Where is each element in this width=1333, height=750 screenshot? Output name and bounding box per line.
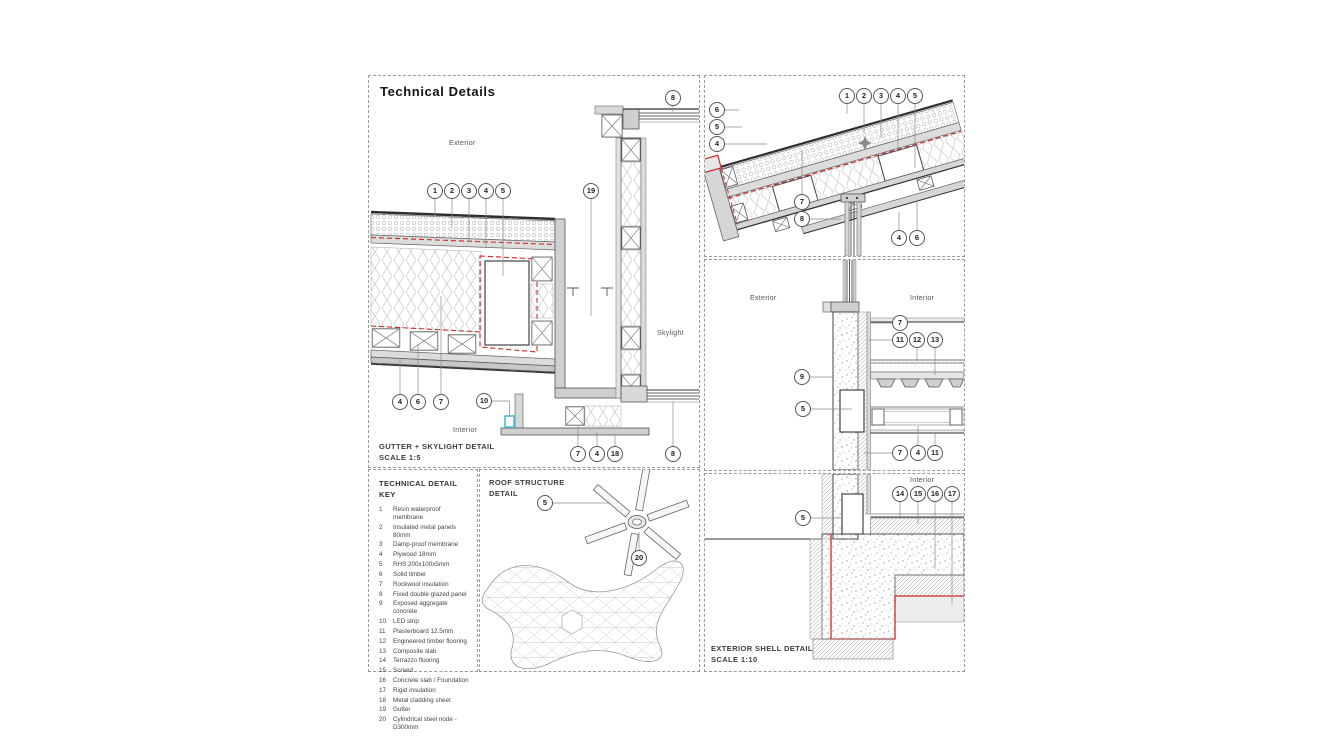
key-item: 2Insulated metal panels 80mm xyxy=(379,524,471,540)
interior-label: Interior xyxy=(453,427,477,434)
callout-11: 11 xyxy=(892,332,908,348)
key-item-number: 6 xyxy=(379,571,393,579)
key-item-number: 19 xyxy=(379,706,393,714)
callout-12: 12 xyxy=(909,332,925,348)
key-item-text: Metal cladding sheet xyxy=(393,697,471,705)
shell-caption-title: EXTERIOR SHELL DETAIL xyxy=(711,644,813,655)
key-item-text: RHS 200x100x5mm xyxy=(393,561,471,569)
callout-7: 7 xyxy=(892,445,908,461)
key-item: 15Screed xyxy=(379,667,471,675)
key-item-number: 2 xyxy=(379,524,393,540)
key-item-number: 10 xyxy=(379,618,393,626)
key-item: 20Cylindrical steel node - D300mm xyxy=(379,716,471,732)
wall-section-drawing xyxy=(705,260,964,470)
key-item: 11Plasterboard 12.5mm xyxy=(379,628,471,636)
key-item: 7Rockwool insulation xyxy=(379,581,471,589)
key-item-text: LED strip xyxy=(393,618,471,626)
key-item: 3Damp-proof membrane xyxy=(379,541,471,549)
callout-5: 5 xyxy=(709,119,725,135)
key-item-number: 11 xyxy=(379,628,393,636)
key-item-number: 5 xyxy=(379,561,393,569)
drawing-sheet: { "sheet": { "title": "Technical Details… xyxy=(0,0,1333,750)
callout-5: 5 xyxy=(795,510,811,526)
callout-5: 5 xyxy=(495,183,511,199)
roof-edge-panel: 123456547846 xyxy=(704,75,965,257)
callout-14: 14 xyxy=(892,486,908,502)
key-item-number: 17 xyxy=(379,687,393,695)
callout-4: 4 xyxy=(910,445,926,461)
roof-structure-panel: ROOF STRUCTURE DETAIL 520 xyxy=(479,469,700,672)
callout-4: 4 xyxy=(891,230,907,246)
key-title-line2: KEY xyxy=(379,490,457,501)
callout-6: 6 xyxy=(709,102,725,118)
callout-2: 2 xyxy=(444,183,460,199)
key-item-number: 20 xyxy=(379,716,393,732)
callout-15: 15 xyxy=(910,486,926,502)
callout-7: 7 xyxy=(794,194,810,210)
interior-label: Interior xyxy=(910,477,934,484)
wall-section-panel: Exterior Interior 7111213957411 xyxy=(704,259,965,471)
caption-title: GUTTER + SKYLIGHT DETAIL xyxy=(379,442,495,453)
key-item-text: Plasterboard 12.5mm xyxy=(393,628,471,636)
shell-drawing xyxy=(705,474,964,671)
key-item: 16Concrete slab / Foundation xyxy=(379,677,471,685)
key-item: 17Rigid insulation xyxy=(379,687,471,695)
key-item-text: Rigid insulation xyxy=(393,687,471,695)
callout-1: 1 xyxy=(427,183,443,199)
roof-structure-title1: ROOF STRUCTURE xyxy=(489,478,565,489)
key-item-text: Engineered timber flooring xyxy=(393,638,471,646)
key-item: 12Engineered timber flooring xyxy=(379,638,471,646)
key-title-line1: TECHNICAL DETAIL xyxy=(379,479,457,490)
key-item: 18Metal cladding sheet xyxy=(379,697,471,705)
callout-13: 13 xyxy=(927,332,943,348)
key-item-number: 14 xyxy=(379,657,393,665)
key-item-number: 4 xyxy=(379,551,393,559)
callout-4: 4 xyxy=(392,394,408,410)
gutter-skylight-panel: Technical Details Exterior Interior Skyl… xyxy=(368,75,700,468)
key-title: TECHNICAL DETAIL KEY xyxy=(379,479,457,501)
callout-5: 5 xyxy=(907,88,923,104)
gutter-skylight-caption: GUTTER + SKYLIGHT DETAIL SCALE 1:5 xyxy=(379,442,495,463)
callout-4: 4 xyxy=(589,446,605,462)
shell-caption-scale: SCALE 1:10 xyxy=(711,655,813,666)
roof-structure-caption: ROOF STRUCTURE DETAIL xyxy=(489,478,565,499)
callout-20: 20 xyxy=(631,550,647,566)
callout-3: 3 xyxy=(461,183,477,199)
callout-5: 5 xyxy=(795,401,811,417)
key-item-text: Composite slab xyxy=(393,648,471,656)
key-item-text: Insulated metal panels 80mm xyxy=(393,524,471,540)
callout-9: 9 xyxy=(794,369,810,385)
key-list: 1Resin waterproof membrane2Insulated met… xyxy=(379,506,471,734)
callout-7: 7 xyxy=(570,446,586,462)
exterior-label: Exterior xyxy=(449,140,476,147)
callout-6: 6 xyxy=(410,394,426,410)
key-item-text: Damp-proof membrane xyxy=(393,541,471,549)
key-item: 13Composite slab xyxy=(379,648,471,656)
callout-5: 5 xyxy=(537,495,553,511)
key-item-text: Fixed double glazed panel xyxy=(393,591,471,599)
caption-scale: SCALE 1:5 xyxy=(379,453,495,464)
key-item-text: Resin waterproof membrane xyxy=(393,506,471,522)
exterior-label: Exterior xyxy=(750,295,777,302)
key-panel: TECHNICAL DETAIL KEY 1Resin waterproof m… xyxy=(368,469,478,672)
callout-16: 16 xyxy=(927,486,943,502)
callout-18: 18 xyxy=(607,446,623,462)
callout-3: 3 xyxy=(873,88,889,104)
key-item-text: Gutter xyxy=(393,706,471,714)
key-item-number: 13 xyxy=(379,648,393,656)
callout-17: 17 xyxy=(944,486,960,502)
key-item: 10LED strip xyxy=(379,618,471,626)
key-item-text: Screed xyxy=(393,667,471,675)
key-item-text: Cylindrical steel node - D300mm xyxy=(393,716,471,732)
callout-1: 1 xyxy=(839,88,855,104)
key-item: 5RHS 200x100x5mm xyxy=(379,561,471,569)
callout-4: 4 xyxy=(478,183,494,199)
callout-4: 4 xyxy=(709,136,725,152)
shell-panel: Interior EXTERIOR SHELL DETAIL SCALE 1:1… xyxy=(704,473,965,672)
interior-label: Interior xyxy=(910,295,934,302)
callout-10: 10 xyxy=(476,393,492,409)
roof-structure-title2: DETAIL xyxy=(489,489,565,500)
callout-2: 2 xyxy=(856,88,872,104)
key-item-text: Terrazzo flooring xyxy=(393,657,471,665)
key-item-text: Exposed aggregate concrete xyxy=(393,600,471,616)
key-item-number: 15 xyxy=(379,667,393,675)
callout-8: 8 xyxy=(794,211,810,227)
key-item-number: 18 xyxy=(379,697,393,705)
callout-7: 7 xyxy=(892,315,908,331)
roof-structure-drawing xyxy=(480,470,699,671)
key-item: 6Solid timber xyxy=(379,571,471,579)
callout-8: 8 xyxy=(665,90,681,106)
callout-6: 6 xyxy=(909,230,925,246)
callout-7: 7 xyxy=(433,394,449,410)
key-item: 19Gutter xyxy=(379,706,471,714)
key-item: 8Fixed double glazed panel xyxy=(379,591,471,599)
callout-4: 4 xyxy=(890,88,906,104)
callout-19: 19 xyxy=(583,183,599,199)
key-item-number: 9 xyxy=(379,600,393,616)
key-item: 9Exposed aggregate concrete xyxy=(379,600,471,616)
callout-11: 11 xyxy=(927,445,943,461)
key-item-number: 12 xyxy=(379,638,393,646)
key-item-number: 16 xyxy=(379,677,393,685)
key-item-text: Concrete slab / Foundation xyxy=(393,677,471,685)
key-item: 1Resin waterproof membrane xyxy=(379,506,471,522)
key-item: 4Plywood 18mm xyxy=(379,551,471,559)
key-item-text: Solid timber xyxy=(393,571,471,579)
key-item-number: 3 xyxy=(379,541,393,549)
key-item-text: Rockwool insulation xyxy=(393,581,471,589)
shell-caption: EXTERIOR SHELL DETAIL SCALE 1:10 xyxy=(711,644,813,665)
sheet-title: Technical Details xyxy=(380,84,495,99)
skylight-label: Skylight xyxy=(657,330,684,337)
key-item-number: 1 xyxy=(379,506,393,522)
roof-edge-drawing xyxy=(705,76,964,256)
callout-8: 8 xyxy=(665,446,681,462)
key-item-number: 7 xyxy=(379,581,393,589)
key-item-text: Plywood 18mm xyxy=(393,551,471,559)
key-item-number: 8 xyxy=(379,591,393,599)
key-item: 14Terrazzo flooring xyxy=(379,657,471,665)
